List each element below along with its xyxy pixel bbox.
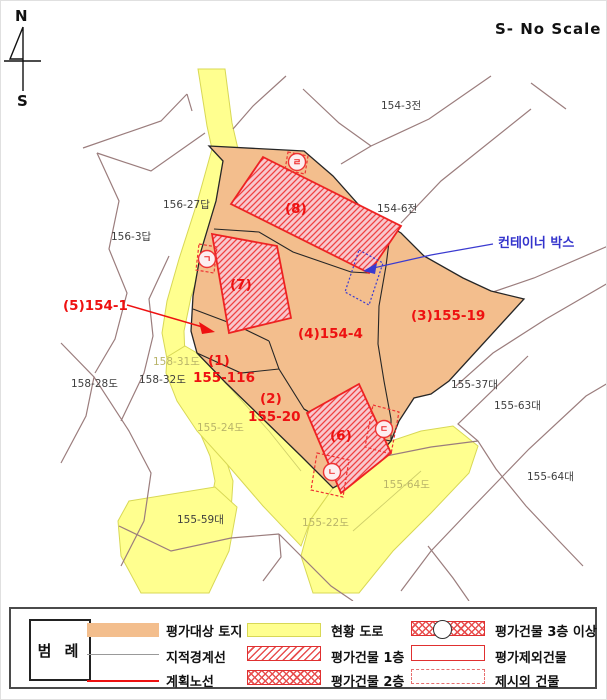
label-parcel-155-64: 155-64도 <box>383 479 430 491</box>
legend-swatch-building-2f <box>247 670 321 685</box>
mark-giyeok: ㄱ <box>199 251 216 268</box>
label-parcel-2-no: (2) <box>260 391 282 407</box>
legend-swatch-building-1f <box>247 646 321 661</box>
label-parcel-155-22: 155-22도 <box>302 517 349 529</box>
label-parcel-2-lot: 155-20 <box>248 409 301 425</box>
svg-text:ㄹ: ㄹ <box>293 158 301 168</box>
legend-swatch-excluded-building <box>411 645 485 661</box>
legend-title-box: 범 례 <box>29 619 91 681</box>
legend-label-building-3f-plus: 평가건물 3층 이상 <box>495 621 597 640</box>
label-parcel-158-32: 158-32도 <box>139 374 186 386</box>
label-building-6: (6) <box>330 428 352 444</box>
label-building-8: (8) <box>285 201 307 217</box>
label-parcel-155-59: 155-59대 <box>177 514 224 526</box>
svg-text:ㄱ: ㄱ <box>203 255 211 265</box>
label-parcel-154-3: 154-3전 <box>381 100 421 112</box>
legend-swatch-cadastral-line <box>87 654 159 655</box>
legend-swatch-target-land <box>87 623 159 637</box>
legend-swatch-planned-route <box>87 680 159 682</box>
label-parcel-4-154-4: (4)154-4 <box>298 326 363 342</box>
label-parcel-155-64b: 155-64대 <box>527 471 574 483</box>
legend-label-cadastral-line: 지적경계선 <box>166 647 226 666</box>
legend-label-building-2f: 평가건물 2층 <box>331 671 404 690</box>
legend-swatch-existing-road <box>247 623 321 637</box>
legend-swatch-unlisted-building <box>411 669 485 684</box>
legend-label-excluded-building: 평가제외건물 <box>495 647 567 666</box>
label-parcel-156-27: 156-27답 <box>163 199 210 211</box>
legend-title: 범 례 <box>38 640 83 661</box>
legend-label-unlisted-building: 제시외 건물 <box>495 671 559 690</box>
compass-north-label: N <box>15 7 28 25</box>
label-parcel-158-31: 158-31도 <box>153 356 200 368</box>
label-parcel-155-63: 155-63대 <box>494 400 541 412</box>
legend-label-existing-road: 현황 도로 <box>331 621 383 640</box>
legend-label-building-1f: 평가건물 1층 <box>331 647 404 666</box>
scale-note: S- No Scale <box>495 20 601 38</box>
legend-label-target-land: 평가대상 토지 <box>166 621 242 640</box>
map: N S S- No Scale (5)154-1(8)(7)(6)(4)154-… <box>1 1 607 601</box>
label-parcel-155-24: 155-24도 <box>197 422 244 434</box>
svg-text:ㄴ: ㄴ <box>328 468 336 478</box>
label-building-7: (7) <box>230 277 252 293</box>
label-container-box: 컨테이너 박스 <box>498 235 574 251</box>
label-parcel-1-no: (1) <box>208 353 230 369</box>
mark-nieun: ㄴ <box>324 464 341 481</box>
label-parcel-155-37: 155-37대 <box>451 379 498 391</box>
legend-label-planned-route: 계획노선 <box>166 671 214 690</box>
label-parcel-156-3: 156-3답 <box>111 231 152 243</box>
compass-south-label: S <box>17 92 28 110</box>
label-parcel-158-28: 158-28도 <box>71 378 118 390</box>
legend-3f-circle-icon <box>433 620 452 639</box>
mark-rieul: ㄹ <box>289 154 306 171</box>
cadastral-map-page: N S S- No Scale (5)154-1(8)(7)(6)(4)154-… <box>0 0 607 700</box>
north-arrow: N S <box>4 7 41 110</box>
svg-text:ㄷ: ㄷ <box>380 425 388 435</box>
label-parcel-1-lot: 155-116 <box>193 370 255 386</box>
label-parcel-154-6: 154-6전 <box>377 203 417 215</box>
mark-digeut: ㄷ <box>376 421 393 438</box>
label-parcel-5-154-1: (5)154-1 <box>63 298 128 314</box>
label-parcel-3-155-19: (3)155-19 <box>411 308 485 324</box>
legend: 범 례 평가대상 토지 지적경계선 계획노선 현황 도로 평가건물 1층 평가건… <box>9 607 597 689</box>
legend-swatch-building-3f-plus <box>411 621 485 636</box>
